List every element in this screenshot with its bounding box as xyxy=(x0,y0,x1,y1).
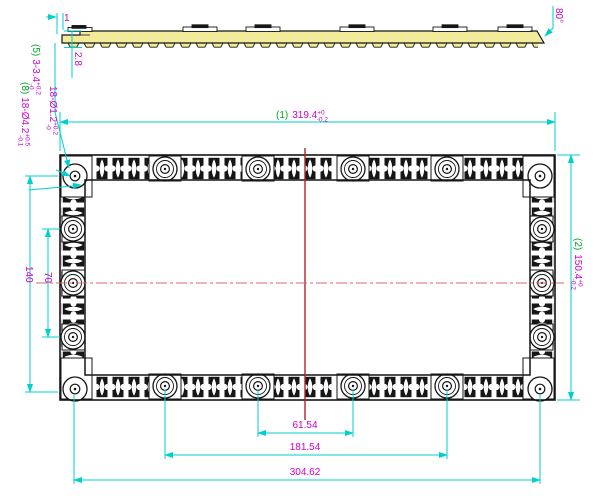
section-body xyxy=(62,31,544,43)
dim-end-step: 1 xyxy=(64,13,70,24)
dim-bottom-outer: 304.62 xyxy=(290,467,321,478)
boss-top-1 xyxy=(153,157,177,181)
frame-band-top xyxy=(61,157,554,180)
engineering-drawing: 1 2.8 80° xyxy=(0,0,600,503)
boss-left-3 xyxy=(61,325,85,349)
frame-outer-outline xyxy=(60,155,555,400)
boss-pads xyxy=(61,156,554,399)
boss-right-1 xyxy=(530,217,554,241)
dim-left-outer: 140 xyxy=(23,266,34,283)
frame-band-bottom xyxy=(61,376,554,398)
dim-bottom-inner: 61.54 xyxy=(292,420,317,431)
dim-overall-height: (2)150.4+0-0.2 xyxy=(570,238,584,290)
dim-left-inner: 70 xyxy=(42,272,53,284)
callout-large-holes: (8)18-Ø4.2+0.5-0.1 xyxy=(17,82,31,147)
main-plan-view xyxy=(60,155,555,401)
boss-top-4 xyxy=(435,157,459,181)
boss-top-2 xyxy=(246,157,270,181)
frame-inner-outline xyxy=(85,180,530,375)
dim-overall-width: (1)319.4+0-0.2 xyxy=(276,110,328,124)
corner-boss-top-left xyxy=(63,164,87,188)
dim-thickness: 2.8 xyxy=(72,52,83,66)
section-teeth xyxy=(66,43,538,49)
corner-boss-top-right xyxy=(528,164,552,188)
boss-right-3 xyxy=(530,325,554,349)
side-section-view xyxy=(62,25,544,49)
boss-top-3 xyxy=(341,157,365,181)
boss-left-1 xyxy=(61,217,85,241)
corner-boss-bottom-left xyxy=(63,377,87,401)
dim-draft-angle: 80° xyxy=(553,8,564,23)
cad-drawing-canvas: 1 2.8 80° xyxy=(0,0,600,503)
callout-small-holes: 18-Ø1.2+0.2-0 xyxy=(45,86,59,135)
dim-bottom-middle: 181.54 xyxy=(290,442,321,453)
